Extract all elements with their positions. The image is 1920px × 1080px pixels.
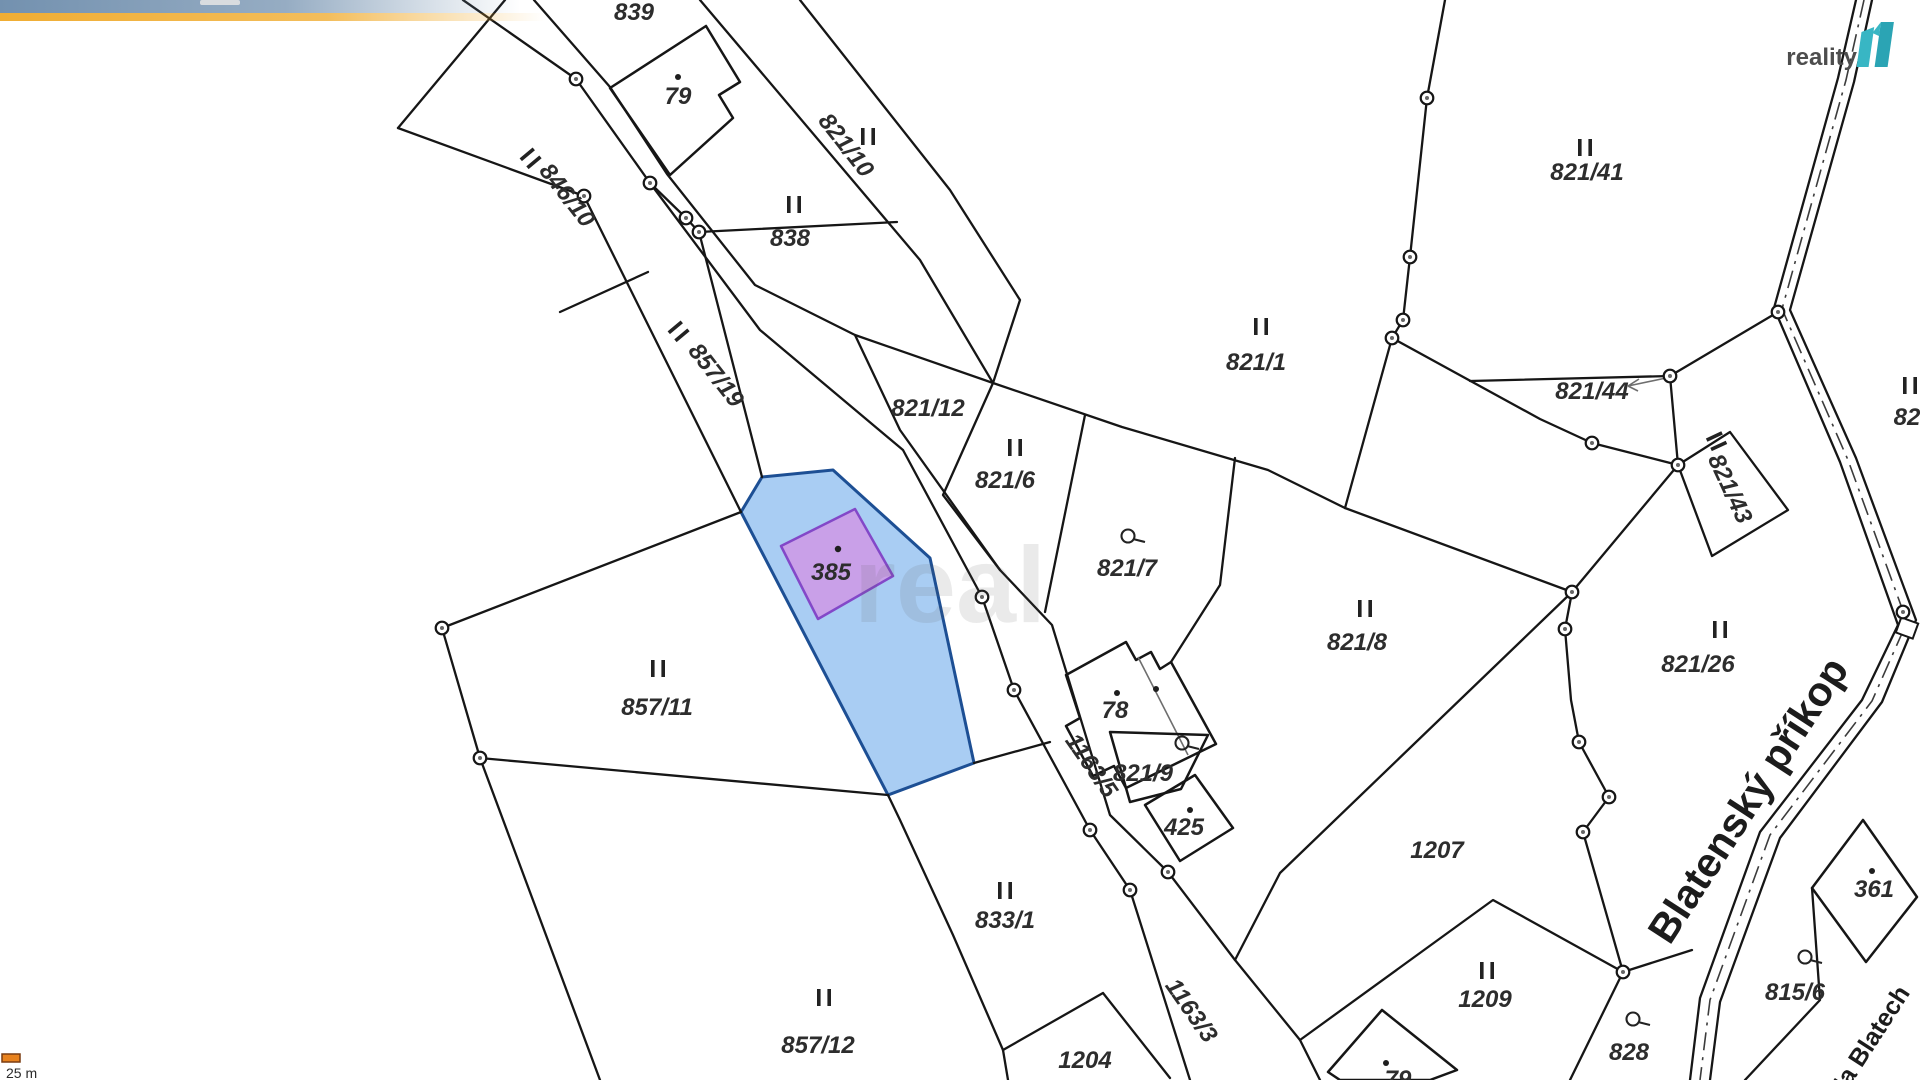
header-stripes [0,0,545,21]
vertex-ring-icon [570,73,583,86]
vertex-ring-icon [474,752,487,765]
building-label-425: 425 [1163,814,1205,841]
vertex-ring-icon [1397,314,1410,327]
vertex-ring-icon [1386,332,1399,345]
vertex-ring-icon [1672,459,1685,472]
parcel-label-838: 838 [770,225,811,252]
highlighted-building-label-385: 385 [811,559,852,586]
scale-bar-rect [2,1054,20,1062]
vertex-ring-icon [1559,623,1572,636]
parcel-label-839: 839 [614,0,655,26]
parcel-label-821-26: 821/26 [1661,651,1735,678]
parcel-label-82-cut: 82 [1894,404,1920,431]
building-label-78: 78 [1102,697,1129,724]
vertex-ring-icon [1573,736,1586,749]
parcel-label-1209: 1209 [1458,986,1512,1013]
parcel-label-821-9: 821/9 [1113,760,1174,787]
stripe-gray-tab [200,0,240,5]
vertex-ring-icon [1772,306,1785,319]
vertex-ring-icon [1124,884,1137,897]
vertex-ring-icon [1664,370,1677,383]
vertex-ring-icon [1586,437,1599,450]
vertex-ring-icon [1577,826,1590,839]
parcel-label-828: 828 [1609,1039,1650,1066]
vertex-ring-icon [644,177,657,190]
parcel-label-821-1: 821/1 [1226,349,1286,376]
parcel-label-821-12: 821/12 [891,395,965,422]
building-label-79: 79 [665,83,692,110]
parcel-label-857-11: 857/11 [621,694,693,721]
parcel-label-821-7: 821/7 [1097,555,1159,582]
vertex-ring-icon [1084,824,1097,837]
parcel-label-1207: 1207 [1410,837,1465,864]
vertex-ring-icon [1008,684,1021,697]
vertex-ring-icon [1617,966,1630,979]
logo-wordmark: reality [1786,44,1857,71]
cadastral-map-canvas[interactable]: 839 79 821/10 838 846/10 857/19 821/12 8… [0,0,1920,1080]
scale-bar-label: 25 m [6,1065,37,1080]
vertex-ring-icon [693,226,706,239]
building-label-361: 361 [1854,876,1894,903]
vertex-ring-icon [1404,251,1417,264]
map-svg: 839 79 821/10 838 846/10 857/19 821/12 8… [0,0,1920,1080]
parcel-label-857-12: 857/12 [781,1032,855,1059]
parcel-label-833-1: 833/1 [975,907,1035,934]
building-label-79-bottom-cut: 79 [1385,1066,1412,1080]
vertex-ring-icon [1603,791,1616,804]
parcel-label-821-44: 821/44 [1555,378,1628,405]
parcel-label-815-6: 815/6 [1765,979,1826,1006]
vertex-ring-icon [680,212,693,225]
parcel-label-821-6: 821/6 [975,467,1036,494]
vertex-ring-icon [1421,92,1434,105]
parcel-label-821-41: 821/41 [1550,159,1623,186]
vertex-ring-icon [1566,586,1579,599]
stripe-yellow [0,13,545,21]
parcel-label-1204: 1204 [1058,1047,1111,1074]
vertex-ring-icon [1897,606,1910,619]
watermark-text: real [854,524,1046,645]
vertex-ring-icon [1162,866,1175,879]
parcel-label-821-8: 821/8 [1327,629,1388,656]
vertex-ring-icon [436,622,449,635]
stripe-blue [0,0,520,13]
